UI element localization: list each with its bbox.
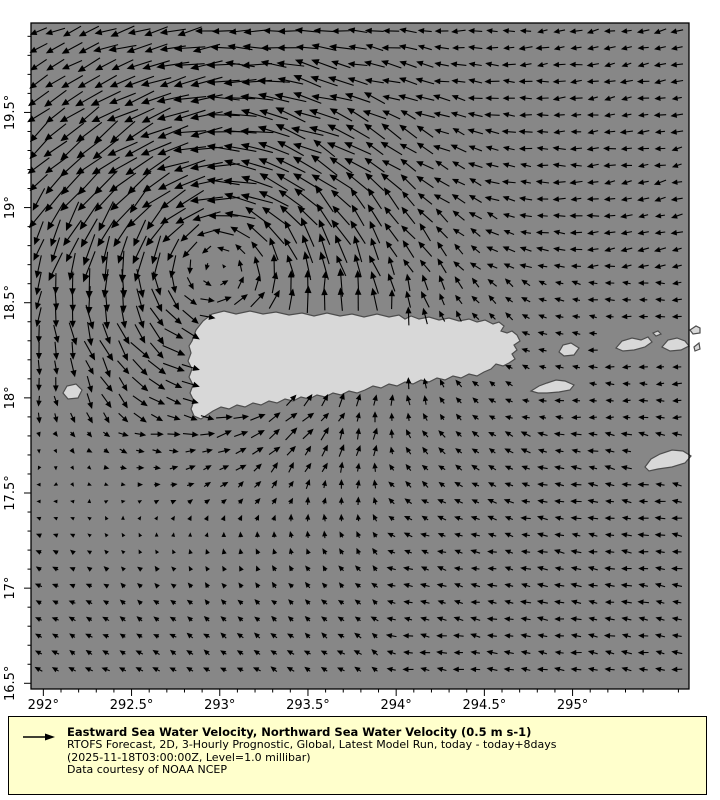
velocity-arrow bbox=[105, 534, 107, 536]
y-tick-label: 17.5° bbox=[3, 475, 18, 510]
y-tick-label: 19.5° bbox=[3, 95, 18, 130]
velocity-arrow bbox=[88, 534, 90, 536]
x-tick-label: 294.5° bbox=[463, 698, 507, 712]
y-tick-label: 19° bbox=[3, 196, 18, 219]
y-tick-label: 16.5° bbox=[3, 666, 18, 701]
velocity-arrow bbox=[38, 484, 40, 486]
x-tick-label: 292° bbox=[28, 698, 59, 712]
x-tick-label: 293.5° bbox=[286, 698, 330, 712]
velocity-arrow bbox=[122, 551, 124, 553]
legend-box: Eastward Sea Water Velocity, Northward S… bbox=[8, 716, 707, 795]
island-cay-2 bbox=[690, 326, 700, 334]
x-tick-label: 293° bbox=[204, 698, 235, 712]
y-tick-label: 18.5° bbox=[3, 285, 18, 320]
y-tick-label: 17° bbox=[3, 577, 18, 600]
x-tick-label: 292.5° bbox=[110, 698, 154, 712]
reference-arrow-icon bbox=[21, 731, 57, 743]
velocity-arrow bbox=[88, 466, 90, 468]
velocity-map-figure: 292°292.5°293°293.5°294°294.5°295°16.5°1… bbox=[0, 0, 720, 800]
x-tick-label: 294° bbox=[380, 698, 411, 712]
velocity-arrow bbox=[156, 534, 158, 536]
island-right-edge-islet bbox=[694, 343, 700, 351]
legend-credit-line: Data courtesy of NOAA NCEP bbox=[67, 764, 557, 777]
y-tick-label: 18° bbox=[3, 386, 18, 409]
x-tick-label: 295° bbox=[557, 698, 588, 712]
map-plot: 292°292.5°293°293.5°294°294.5°295°16.5°1… bbox=[0, 0, 720, 712]
legend-dataset-line: RTOFS Forecast, 2D, 3-Hourly Prognostic,… bbox=[67, 739, 557, 752]
